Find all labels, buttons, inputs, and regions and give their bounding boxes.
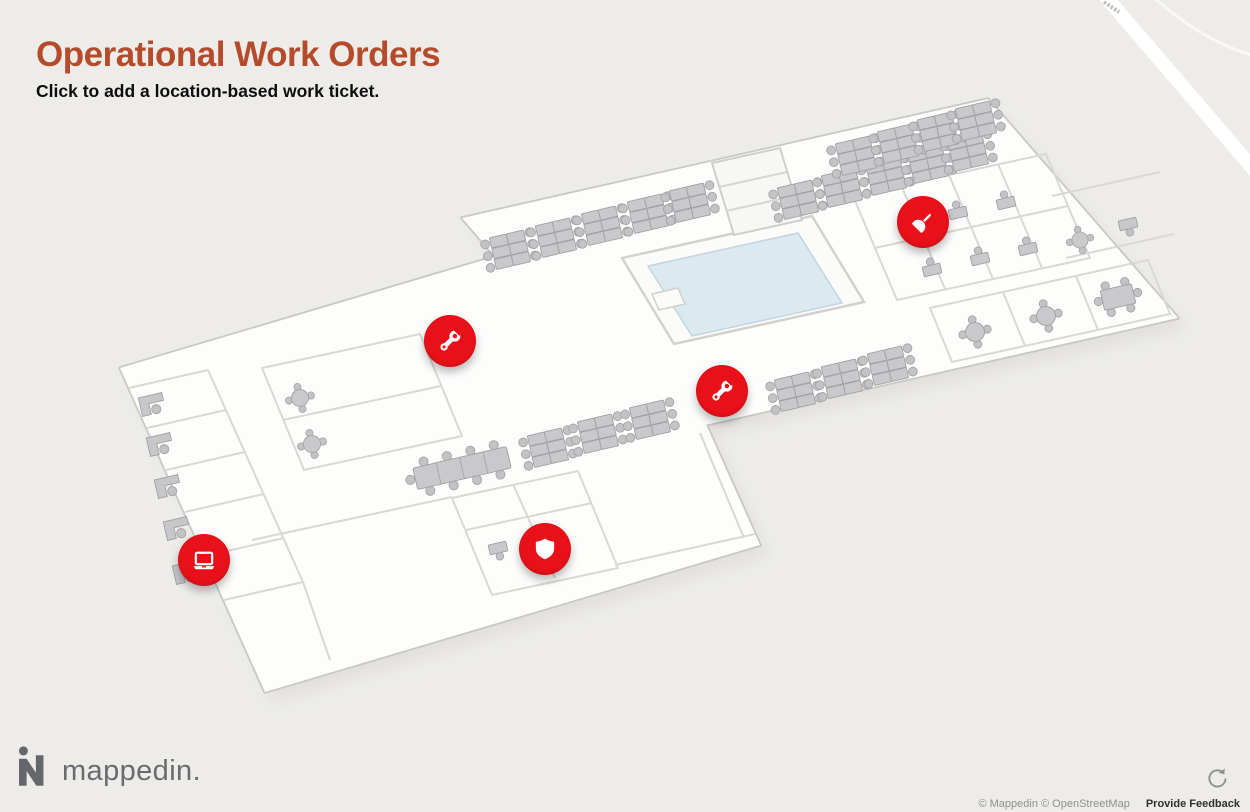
laptop-icon [190, 546, 218, 574]
shield-icon [531, 535, 559, 563]
reset-rotation-icon[interactable] [1204, 766, 1230, 792]
work-order-marker-plunger[interactable] [897, 196, 949, 248]
work-order-marker-wrench-2[interactable] [696, 365, 748, 417]
mappedin-logo-text: mappedin. [62, 757, 201, 788]
mappedin-logo[interactable]: mappedin. [16, 744, 201, 788]
wrench-icon [708, 377, 736, 405]
page-subtitle: Click to add a location-based work ticke… [36, 81, 440, 102]
page-title: Operational Work Orders [36, 36, 440, 75]
attribution-bar: © Mappedin © OpenStreetMap Provide Feedb… [978, 798, 1240, 810]
work-order-marker-wrench-1[interactable] [424, 315, 476, 367]
provide-feedback-link[interactable]: Provide Feedback [1146, 798, 1240, 810]
mappedin-logo-mark [16, 744, 50, 788]
wrench-icon [436, 327, 464, 355]
header: Operational Work Orders Click to add a l… [36, 36, 440, 102]
floor-plan-map[interactable] [0, 0, 1250, 812]
work-order-marker-shield[interactable] [519, 523, 571, 575]
map-attribution: © Mappedin © OpenStreetMap [978, 798, 1129, 810]
plunger-icon [909, 208, 937, 236]
work-order-marker-laptop[interactable] [178, 534, 230, 586]
